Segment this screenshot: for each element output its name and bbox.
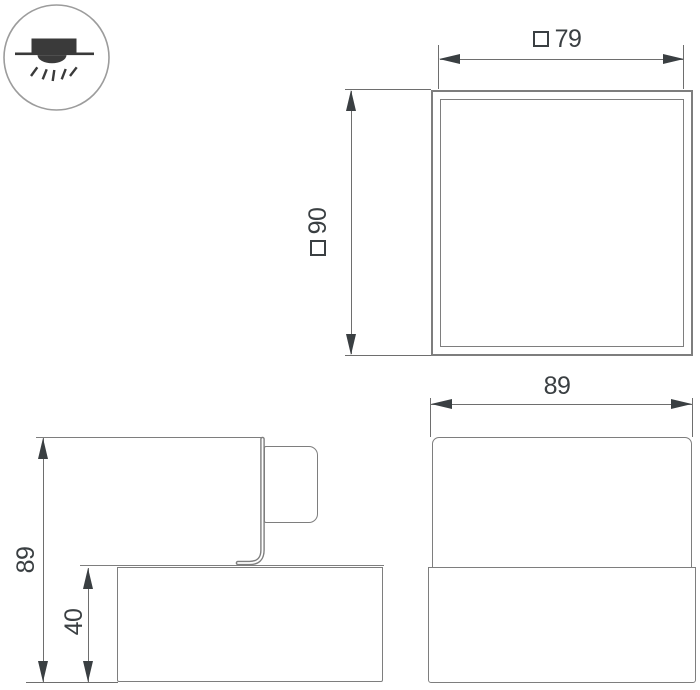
section-body-height-value: 40 — [59, 609, 89, 636]
section-top-line — [36, 437, 263, 438]
section-visible-body — [117, 567, 383, 682]
technical-drawing-canvas: 79 90 89 — [0, 0, 700, 690]
section-view: 89 40 — [0, 0, 700, 690]
section-total-height-value: 89 — [11, 547, 41, 574]
driver-box — [264, 446, 318, 523]
dim-line-total-height — [43, 438, 44, 682]
arrow-down-icon — [38, 661, 48, 682]
section-body-height-label: 40 — [59, 562, 89, 682]
arrow-up-icon — [38, 438, 48, 459]
section-total-height-label: 89 — [11, 500, 41, 620]
ext-line — [26, 682, 118, 683]
